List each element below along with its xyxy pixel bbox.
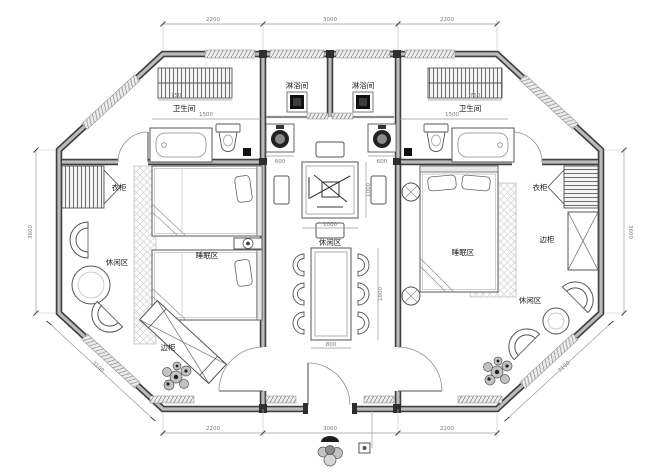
dim-bottom-right: 2200 <box>440 426 454 432</box>
shower-drain-right <box>353 92 373 112</box>
label-sleep-left: 睡眠区 <box>196 251 219 260</box>
bathtub-right <box>452 128 514 162</box>
label-sleep-right: 睡眠区 <box>452 248 475 257</box>
label-wardrobe-left: 衣柜 <box>112 182 127 192</box>
floor-drain-right-bath <box>404 148 412 156</box>
twin-bed-1 <box>152 166 262 236</box>
side-table-right-top <box>402 183 420 201</box>
entry-fixture <box>359 443 370 453</box>
entry-jamb-left <box>303 403 308 414</box>
dim-dining-length: 1800 <box>378 287 384 301</box>
dim-shelf-right: 750 <box>470 93 481 99</box>
dim-left-wall: 3600 <box>28 225 34 239</box>
dim-basin-right: 600 <box>377 159 388 165</box>
dim-bath-left: 1500 <box>199 112 213 118</box>
towel-shelf-left <box>158 68 232 98</box>
dim-shelf-left: 750 <box>171 93 182 99</box>
label-leisure-left: 休闲区 <box>106 257 129 267</box>
dim-right-wall: 3600 <box>627 225 633 239</box>
label-shower-right: 淋浴间 <box>352 80 375 90</box>
label-cabinet-right: 边柜 <box>540 234 555 244</box>
stool-left <box>274 176 289 204</box>
washbasin-left <box>266 124 294 152</box>
label-wardrobe-right: 衣柜 <box>533 182 548 192</box>
stool-top <box>316 142 344 157</box>
washbasin-right <box>368 124 396 152</box>
dim-basin-left: 600 <box>275 159 286 165</box>
dim-bottom-center: 3000 <box>323 426 337 432</box>
coffee-table-right <box>543 308 569 334</box>
stool-right <box>371 176 386 204</box>
floor-plan-drawing: 2200 3000 2200 2200 3000 2200 3600 3600 … <box>0 0 651 473</box>
dim-top-center: 3000 <box>323 17 337 23</box>
side-cabinet-right <box>568 212 598 270</box>
dim-top-left: 2200 <box>206 17 220 23</box>
dim-dining-width: 800 <box>326 342 337 348</box>
bathtub-left <box>150 128 212 162</box>
label-leisure-center: 休闲区 <box>319 237 342 247</box>
label-bathroom-left: 卫生间 <box>173 103 196 113</box>
label-bathroom-right: 卫生间 <box>459 103 482 113</box>
label-leisure-right: 休闲区 <box>519 295 542 305</box>
floor-plan-canvas: 2200 3000 2200 2200 3000 2200 3600 3600 … <box>0 0 651 473</box>
coffee-table-left <box>72 266 110 304</box>
dim-game-table: 1000 <box>323 222 337 228</box>
dim-top-right: 2200 <box>440 17 454 23</box>
double-bed <box>420 166 498 292</box>
nightstand-left <box>234 238 262 249</box>
label-cabinet-left: 边柜 <box>161 342 176 352</box>
entry-opening <box>306 402 354 415</box>
side-table-right-bottom <box>402 287 420 305</box>
shower-drain-left <box>287 92 307 112</box>
twin-bed-2 <box>152 250 262 320</box>
label-shower-left: 淋浴间 <box>286 80 309 90</box>
dim-bottom-left: 2200 <box>206 426 220 432</box>
floor-drain-left-bath <box>243 148 251 156</box>
towel-shelf-right <box>428 68 502 98</box>
entry-jamb-right <box>352 403 357 414</box>
dim-game-table-side: 1000 <box>366 183 372 197</box>
dim-bath-right: 1500 <box>445 112 459 118</box>
